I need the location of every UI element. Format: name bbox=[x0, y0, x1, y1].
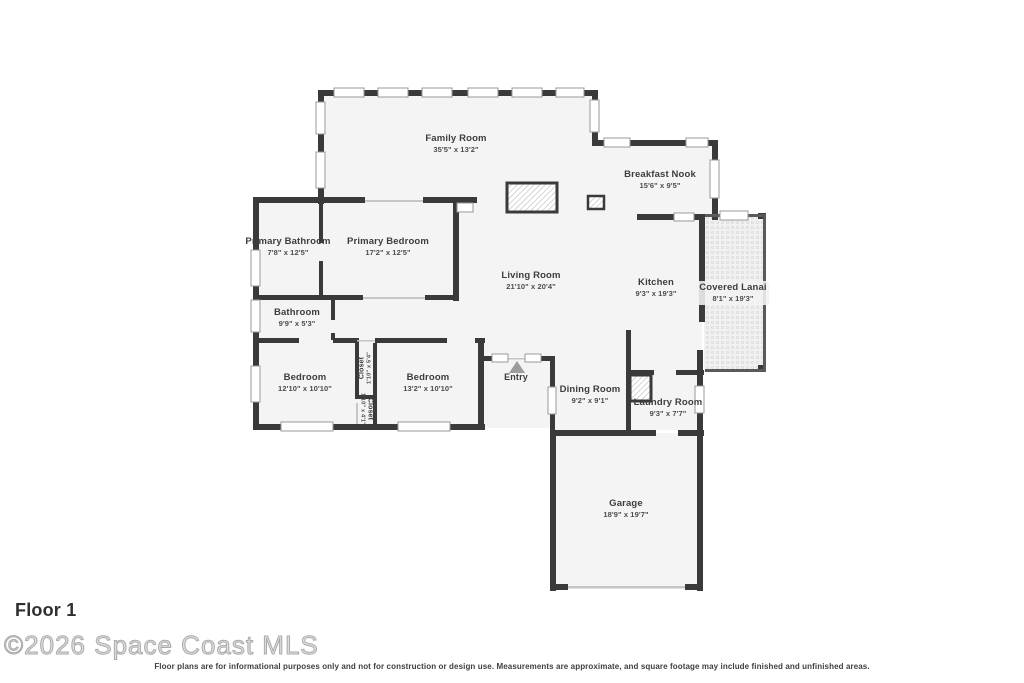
room-dims: 12'10" x 10'10" bbox=[278, 384, 332, 394]
room-dims: 15'6" x 9'5" bbox=[624, 181, 696, 191]
fireplace-hatch bbox=[507, 183, 557, 212]
room-label-bathroom: Bathroom 9'9" x 5'3" bbox=[274, 307, 320, 329]
room-label-bedroom-right: Bedroom 13'2" x 10'10" bbox=[403, 372, 453, 394]
room-label-covered-lanai: Covered Lanai 8'1" x 19'3" bbox=[696, 281, 769, 305]
room-name: Living Room bbox=[501, 270, 560, 282]
floor-plan-page: Family Room 35'5" x 13'2" Breakfast Nook… bbox=[0, 0, 1024, 683]
room-dims: 21'10" x 20'4" bbox=[501, 282, 560, 292]
room-label-primary-bedroom: Primary Bedroom 17'2" x 12'5" bbox=[347, 236, 429, 258]
room-label-kitchen: Kitchen 9'3" x 19'3" bbox=[635, 277, 676, 299]
room-label-entry: Entry bbox=[504, 372, 528, 384]
room-dims: 7'8" x 12'5" bbox=[245, 248, 330, 258]
room-name: Closet bbox=[359, 352, 367, 384]
room-name: Bathroom bbox=[274, 307, 320, 319]
room-label-garage: Garage 18'9" x 19'7" bbox=[603, 498, 648, 520]
room-dims: 9'3" x 19'3" bbox=[635, 289, 676, 299]
disclaimer-text: Floor plans are for informational purpos… bbox=[0, 662, 1024, 671]
floor-title: Floor 1 bbox=[15, 600, 76, 621]
room-label-dining-room: Dining Room 9'2" x 9'1" bbox=[560, 384, 621, 406]
room-dims: 1'10" x 4'1" bbox=[359, 393, 366, 425]
room-dims: 9'2" x 9'1" bbox=[560, 396, 621, 406]
room-name: Bedroom bbox=[403, 372, 453, 384]
fixture-hatch-small bbox=[588, 196, 604, 209]
room-name: Garage bbox=[603, 498, 648, 510]
room-name: Primary Bathroom bbox=[245, 236, 330, 248]
room-name: Family Room bbox=[425, 133, 486, 145]
room-name: Entry bbox=[504, 372, 528, 384]
room-dims: 18'9" x 19'7" bbox=[603, 510, 648, 520]
room-name: Laundry Room bbox=[634, 397, 703, 409]
room-label-closet-upper: Closet 1'10" x 5'4" bbox=[359, 352, 374, 384]
room-name: Dining Room bbox=[560, 384, 621, 396]
room-dims: 13'2" x 10'10" bbox=[403, 384, 453, 394]
room-name: Kitchen bbox=[635, 277, 676, 289]
watermark: ©2026 Space Coast MLS bbox=[4, 630, 319, 661]
room-label-family-room: Family Room 35'5" x 13'2" bbox=[425, 133, 486, 155]
room-name: Primary Bedroom bbox=[347, 236, 429, 248]
room-dims: 17'2" x 12'5" bbox=[347, 248, 429, 258]
room-dims: 35'5" x 13'2" bbox=[425, 145, 486, 155]
room-label-laundry-room: Laundry Room 9'3" x 7'7" bbox=[634, 397, 703, 419]
room-label-primary-bathroom: Primary Bathroom 7'8" x 12'5" bbox=[245, 236, 330, 258]
room-dims: 8'1" x 19'3" bbox=[699, 294, 766, 304]
room-label-bedroom-left: Bedroom 12'10" x 10'10" bbox=[278, 372, 332, 394]
room-name: Closet bbox=[365, 393, 373, 425]
floor-plan-drawing bbox=[0, 0, 1024, 683]
room-dims: 1'10" x 5'4" bbox=[367, 352, 374, 384]
room-name: Covered Lanai bbox=[699, 282, 766, 294]
room-name: Breakfast Nook bbox=[624, 169, 696, 181]
room-name: Bedroom bbox=[278, 372, 332, 384]
room-dims: 9'9" x 5'3" bbox=[274, 319, 320, 329]
room-label-closet-lower: Closet 1'10" x 4'1" bbox=[359, 393, 374, 425]
room-label-living-room: Living Room 21'10" x 20'4" bbox=[501, 270, 560, 292]
room-label-breakfast-nook: Breakfast Nook 15'6" x 9'5" bbox=[624, 169, 696, 191]
room-dims: 9'3" x 7'7" bbox=[634, 409, 703, 419]
